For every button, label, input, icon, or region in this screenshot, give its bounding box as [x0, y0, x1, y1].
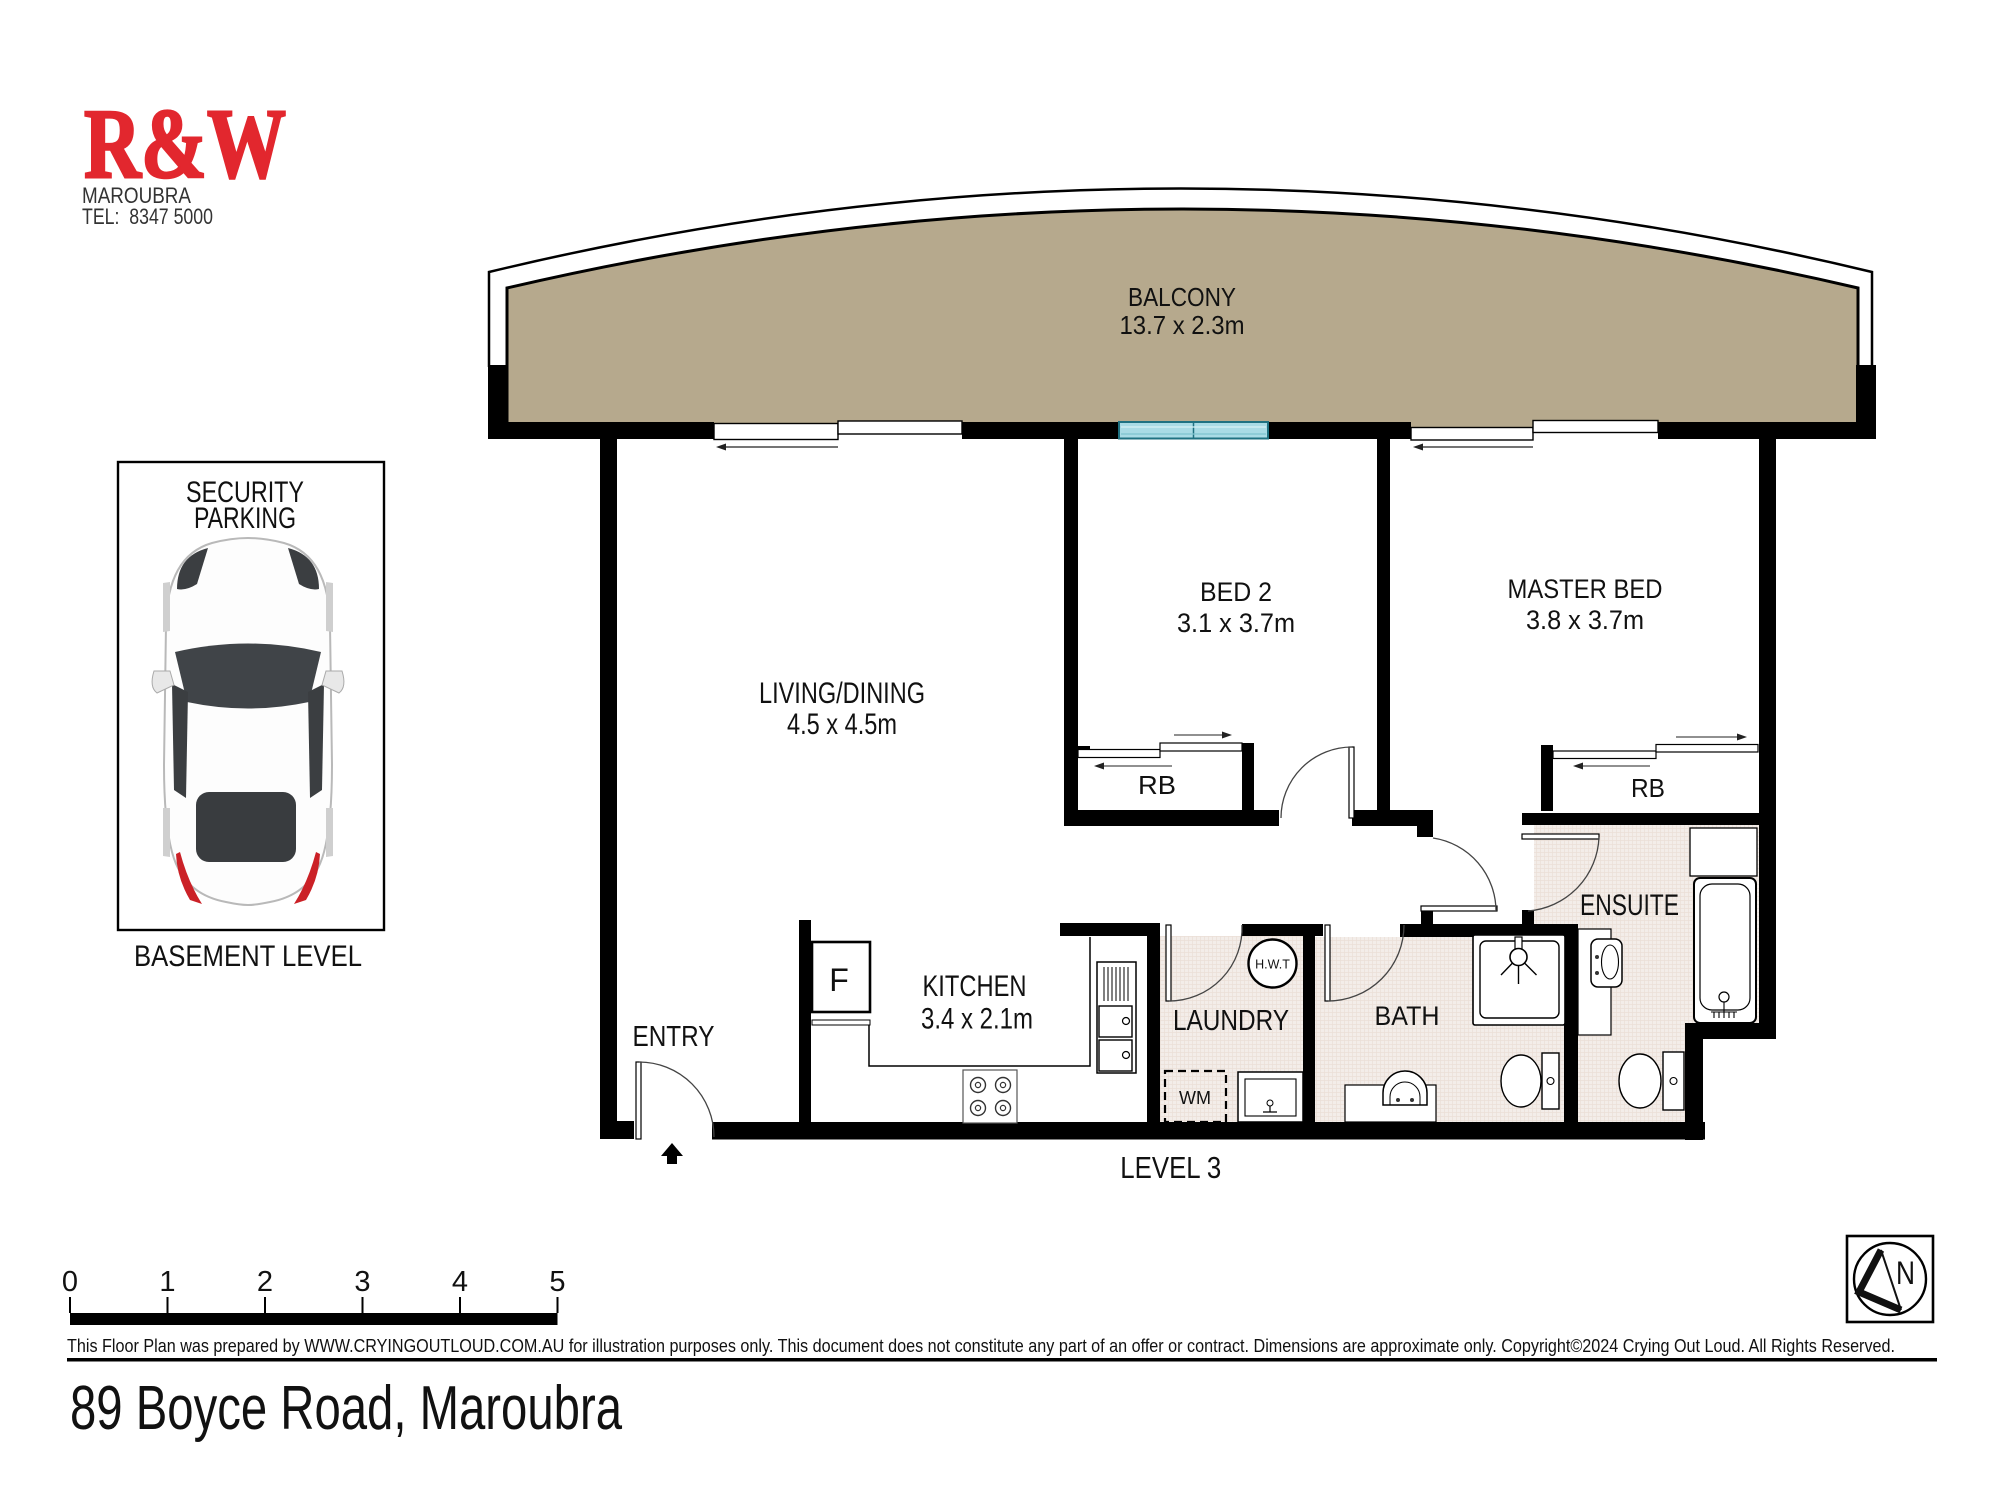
- svg-text:5: 5: [549, 1266, 565, 1298]
- svg-text:ENSUITE: ENSUITE: [1580, 889, 1679, 922]
- svg-text:4.5 x 4.5m: 4.5 x 4.5m: [787, 708, 897, 741]
- svg-text:LEVEL 3: LEVEL 3: [1120, 1150, 1221, 1185]
- svg-text:ENTRY: ENTRY: [633, 1021, 715, 1053]
- svg-text:This Floor Plan was prepared b: This Floor Plan was prepared by WWW.CRYI…: [67, 1336, 1895, 1356]
- svg-text:BED 2: BED 2: [1200, 577, 1272, 607]
- svg-text:LIVING/DINING: LIVING/DINING: [759, 677, 925, 710]
- svg-text:3.4 x 2.1m: 3.4 x 2.1m: [921, 1003, 1033, 1036]
- svg-text:WM: WM: [1179, 1088, 1211, 1108]
- svg-text:4: 4: [452, 1266, 468, 1298]
- svg-text:N: N: [1896, 1255, 1915, 1291]
- svg-text:2: 2: [257, 1266, 273, 1298]
- svg-text:1: 1: [159, 1266, 175, 1298]
- svg-text:BALCONY: BALCONY: [1128, 282, 1236, 312]
- svg-text:3.8 x 3.7m: 3.8 x 3.7m: [1526, 605, 1644, 635]
- svg-text:F: F: [829, 962, 849, 998]
- svg-text:KITCHEN: KITCHEN: [923, 970, 1027, 1003]
- svg-text:LAUNDRY: LAUNDRY: [1173, 1005, 1289, 1037]
- svg-text:13.7 x 2.3m: 13.7 x 2.3m: [1120, 310, 1245, 340]
- svg-text:H.W.T: H.W.T: [1255, 958, 1290, 972]
- svg-text:BATH: BATH: [1375, 1001, 1440, 1031]
- svg-text:89 Boyce Road, Maroubra: 89 Boyce Road, Maroubra: [70, 1374, 622, 1443]
- svg-text:MASTER BED: MASTER BED: [1508, 574, 1663, 604]
- svg-text:RB: RB: [1138, 770, 1176, 800]
- svg-text:3.1 x 3.7m: 3.1 x 3.7m: [1177, 608, 1295, 638]
- svg-text:3: 3: [354, 1266, 370, 1298]
- svg-text:PARKING: PARKING: [194, 502, 296, 535]
- svg-text:0: 0: [62, 1266, 78, 1298]
- svg-text:TEL: 8347 5000: TEL: 8347 5000: [82, 204, 213, 229]
- svg-text:RB: RB: [1631, 773, 1665, 803]
- svg-text:BASEMENT LEVEL: BASEMENT LEVEL: [134, 940, 362, 973]
